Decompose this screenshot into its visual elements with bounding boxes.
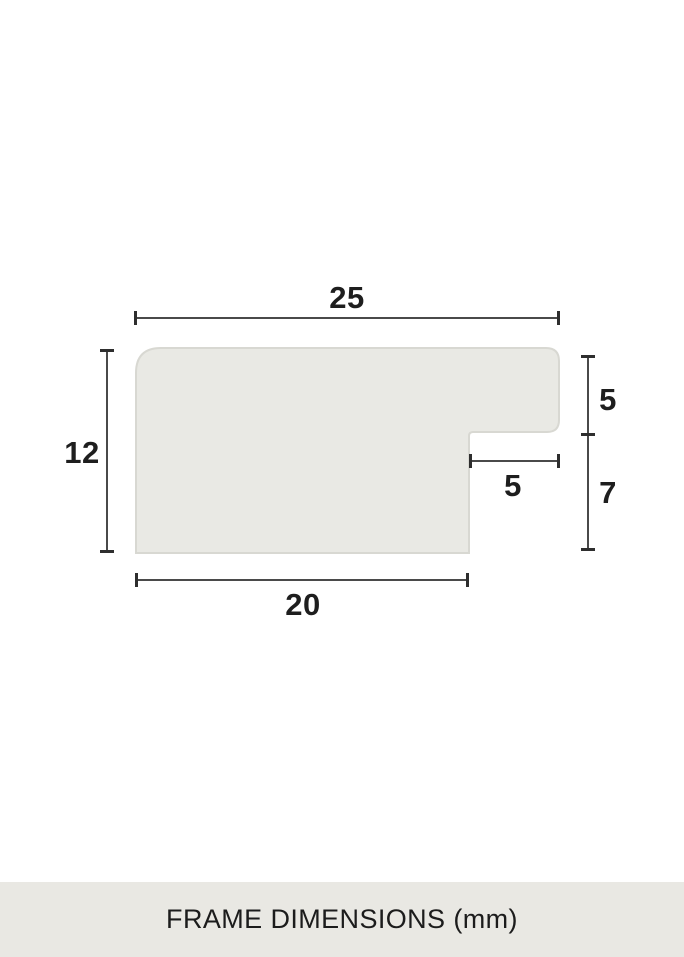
dim-bottom-width-line xyxy=(136,579,469,581)
dim-right-heights-tick-top xyxy=(581,355,595,358)
dim-right-upper-label: 5 xyxy=(588,384,628,415)
caption-text: FRAME DIMENSIONS (mm) xyxy=(166,906,518,933)
dim-top-width-tick-left xyxy=(134,311,137,325)
dim-top-width-line xyxy=(135,317,559,319)
dim-bottom-width-tick-right xyxy=(466,573,469,587)
dim-rabbet-width-label: 5 xyxy=(493,470,533,501)
dim-right-lower-label: 7 xyxy=(588,477,628,508)
dim-bottom-width-tick-left xyxy=(135,573,138,587)
dim-left-height-tick-top xyxy=(100,349,114,352)
dim-rabbet-width-tick-left xyxy=(469,454,472,468)
dim-right-heights-tick-middle xyxy=(581,433,595,436)
dim-top-width-label: 25 xyxy=(307,282,387,313)
dim-top-width-tick-right xyxy=(557,311,560,325)
frame-profile-shape xyxy=(0,0,684,957)
caption-bar: FRAME DIMENSIONS (mm) xyxy=(0,882,684,957)
dim-left-height-label: 12 xyxy=(52,437,112,468)
dim-rabbet-width-line xyxy=(470,460,559,462)
dim-left-height-tick-bottom xyxy=(100,550,114,553)
dim-rabbet-width-tick-right xyxy=(557,454,560,468)
dim-right-heights-tick-bottom xyxy=(581,548,595,551)
dim-bottom-width-label: 20 xyxy=(263,589,343,620)
frame-dimension-diagram: 25 12 5 7 5 20 FRAME DIMENSIONS (mm) xyxy=(0,0,684,957)
